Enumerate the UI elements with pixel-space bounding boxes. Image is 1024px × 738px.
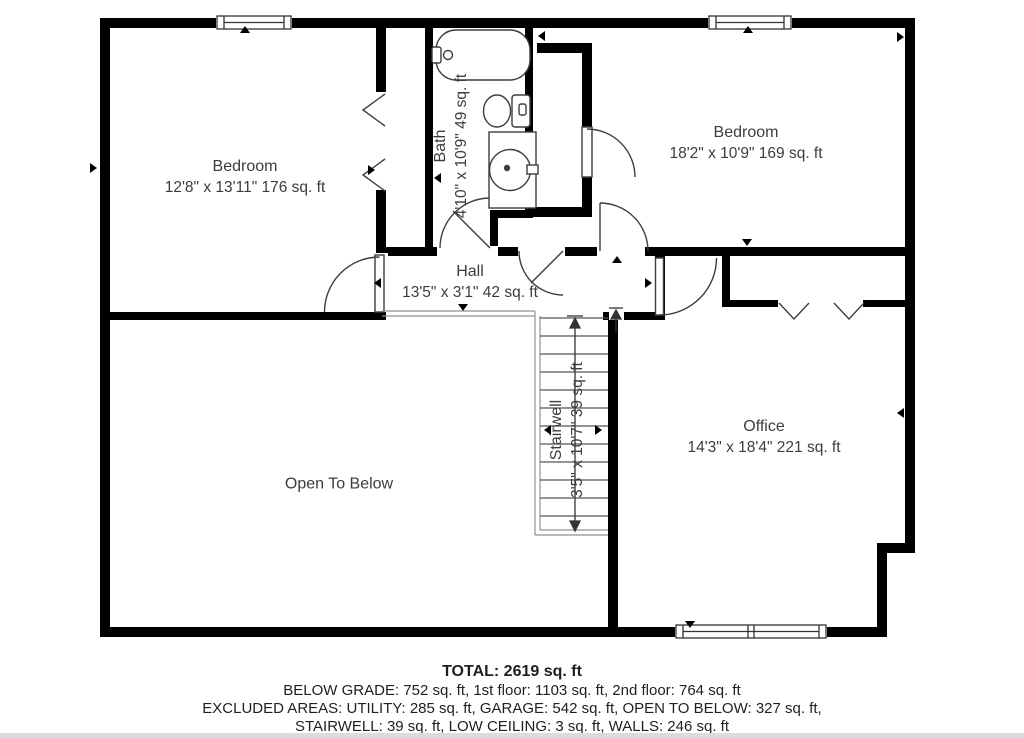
sink-vanity-icon <box>489 132 538 208</box>
total-area-text: TOTAL: 2619 sq. ft <box>0 662 1024 682</box>
wall-notch-nub <box>887 543 915 553</box>
summary-line-floors: BELOW GRADE: 752 sq. ft, 1st floor: 1103… <box>0 682 1024 700</box>
room-label-office: Office 14'3" x 18'4" 221 sq. ft <box>687 416 840 458</box>
dim-tick-icon <box>612 256 622 263</box>
wall-open-below-top <box>100 312 386 320</box>
dim-tick-icon <box>742 239 752 246</box>
floor-plan-drawing <box>0 0 1024 738</box>
window-icon-office <box>676 625 826 638</box>
toilet-icon <box>484 95 531 127</box>
dim-tick-icon <box>538 31 545 41</box>
room-label-open-to-below: Open To Below <box>285 474 393 495</box>
door-closet-bedroom2 <box>582 127 635 177</box>
room-label-hall: Hall 13'5" x 3'1" 42 sq. ft <box>402 261 538 303</box>
chevron-opening-icon <box>834 303 864 319</box>
chevron-opening-icon <box>779 303 809 319</box>
wall-nook-left <box>722 255 730 307</box>
wall-nook-bottom-left <box>730 300 778 307</box>
room-name: Office <box>687 416 840 437</box>
wall-exterior-left <box>100 18 110 637</box>
dim-tick-icon <box>897 408 904 418</box>
summary-line-excluded: EXCLUDED AREAS: UTILITY: 285 sq. ft, GAR… <box>0 700 1024 718</box>
window-icon-bedroom2 <box>709 16 791 29</box>
room-dimensions: 14'3" x 18'4" 221 sq. ft <box>687 437 840 458</box>
room-dimensions: 18'2" x 10'9" 169 sq. ft <box>669 143 822 164</box>
wall-exterior-right <box>905 18 915 553</box>
wall-nook-bottom-right <box>863 300 905 307</box>
room-dimensions: 12'8" x 13'11" 176 sq. ft <box>165 177 326 198</box>
room-label-bedroom-1: Bedroom 12'8" x 13'11" 176 sq. ft <box>165 156 326 198</box>
page-edge-strip <box>0 733 1024 738</box>
room-name: Bedroom <box>669 122 822 143</box>
dim-tick-icon <box>90 163 97 173</box>
bathtub-icon <box>432 30 530 80</box>
room-label-stairwell: Stairwell 3'5" x 10'7" 39 sq. ft <box>546 362 588 498</box>
door-bedroom2 <box>600 203 648 251</box>
dim-tick-icon <box>897 32 904 42</box>
wall-office-left <box>608 312 618 637</box>
wall-notch-vertical <box>877 543 887 637</box>
room-name: Bedroom <box>165 156 326 177</box>
window-icon-bedroom1 <box>217 16 291 29</box>
room-label-bath: Bath 4'10" x 10'9" 49 sq. ft <box>430 74 472 218</box>
room-name: Bath <box>430 74 451 218</box>
room-name: Hall <box>402 261 538 282</box>
room-dimensions: 13'5" x 3'1" 42 sq. ft <box>402 282 538 303</box>
area-summary: TOTAL: 2619 sq. ft BELOW GRADE: 752 sq. … <box>0 662 1024 736</box>
dim-tick-icon <box>645 278 652 288</box>
room-name: Stairwell <box>546 362 567 498</box>
room-name: Open To Below <box>285 474 393 495</box>
room-dimensions: 4'10" x 10'9" 49 sq. ft <box>451 74 472 218</box>
room-dimensions: 3'5" x 10'7" 39 sq. ft <box>567 362 588 498</box>
room-label-bedroom-2: Bedroom 18'2" x 10'9" 169 sq. ft <box>669 122 822 164</box>
dim-tick-icon <box>458 304 468 311</box>
floor-plan-page: Bedroom 12'8" x 13'11" 176 sq. ft Bath 4… <box>0 0 1024 738</box>
